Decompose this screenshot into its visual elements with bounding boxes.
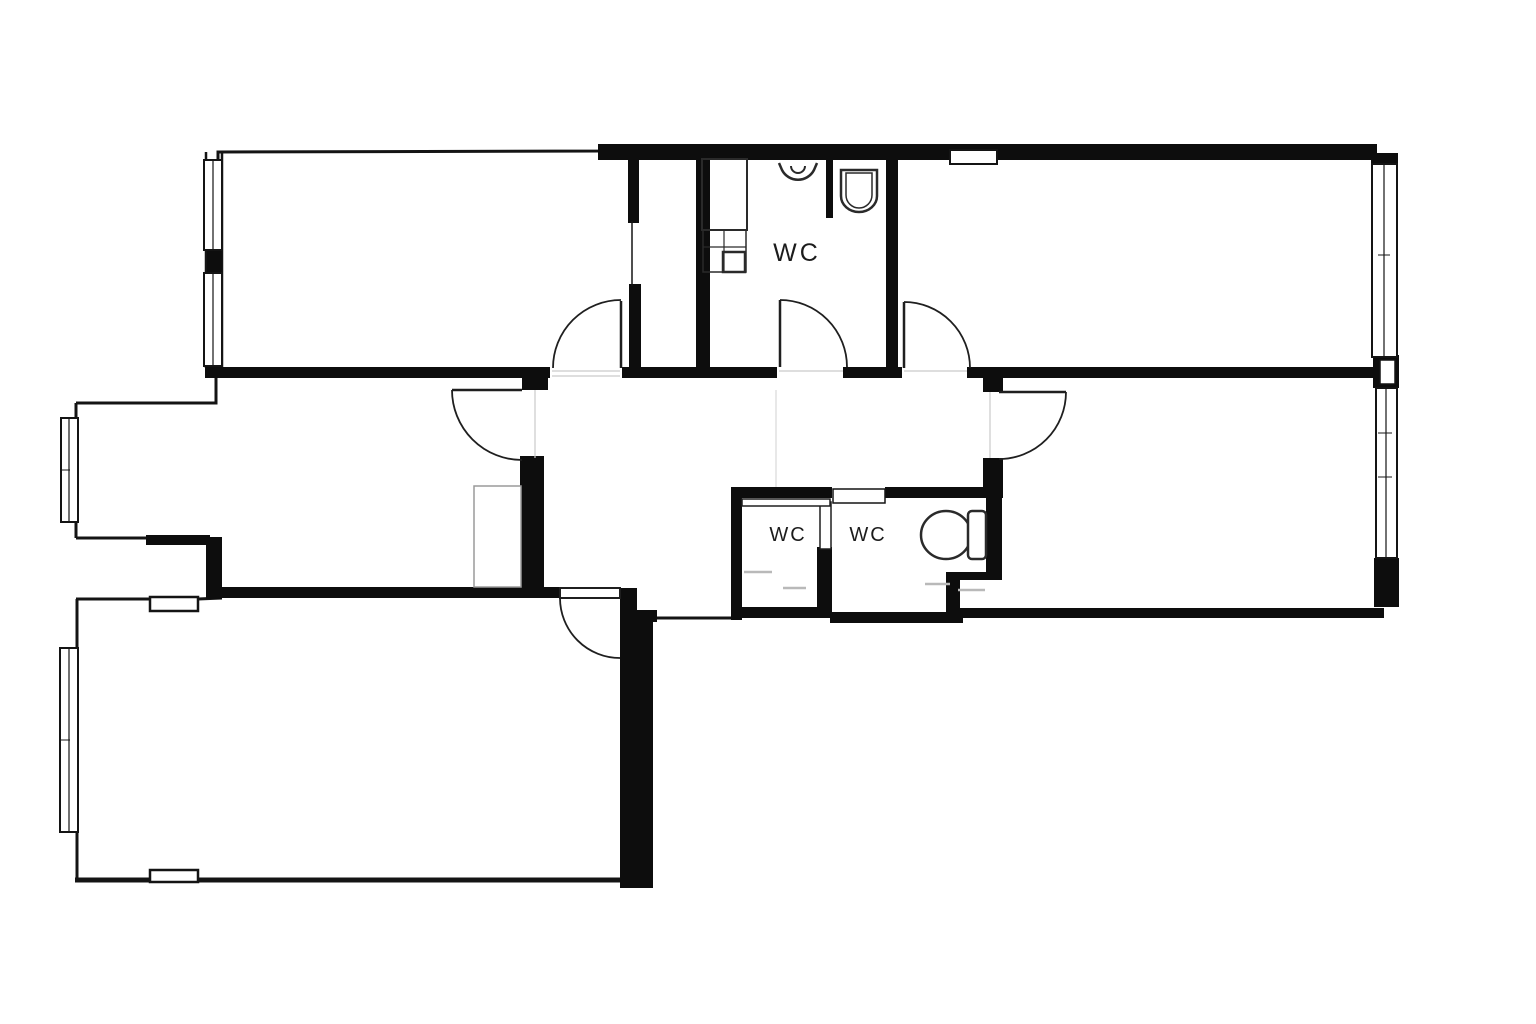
wall-wc-divider bbox=[817, 547, 832, 610]
wall-midleft-bottom bbox=[146, 535, 210, 545]
wall-wc-top-right bbox=[886, 144, 898, 368]
toilet-top-icon bbox=[841, 170, 877, 212]
exterior-wall-top-left bbox=[218, 147, 632, 161]
door-wc-left-slider bbox=[742, 499, 830, 506]
window-topleft-lower bbox=[204, 273, 222, 366]
room-label-wc-top: WC bbox=[773, 239, 821, 267]
door-wc-top bbox=[780, 300, 847, 367]
window-topleft-upper bbox=[204, 160, 222, 250]
room-label-wc-right: WC bbox=[849, 524, 886, 546]
window-sill-box bbox=[1380, 360, 1395, 384]
wall-closet-upper bbox=[628, 150, 639, 223]
wall-toilet-niche bbox=[826, 158, 833, 218]
toilet-right-icon bbox=[921, 511, 986, 559]
wall-cap-topright bbox=[1371, 153, 1398, 164]
wall-bottomroom-right bbox=[620, 588, 657, 888]
door-midleft-room bbox=[452, 390, 522, 460]
wall-notches bbox=[150, 150, 997, 882]
notch-topright-wall bbox=[950, 150, 997, 164]
window-midright bbox=[1376, 388, 1397, 558]
door-bottomleft-room bbox=[560, 588, 620, 658]
wall-wcright-east bbox=[986, 487, 1002, 580]
thresholds bbox=[535, 371, 990, 487]
wall-spine-d bbox=[967, 367, 1382, 378]
wall-midright-bottom bbox=[956, 608, 1384, 618]
windows bbox=[60, 160, 1397, 832]
notch-bottomroom-top bbox=[150, 597, 198, 611]
door-midright-room bbox=[999, 392, 1066, 459]
wall-wcleft-west bbox=[731, 487, 742, 620]
exterior-wall-step bbox=[76, 378, 216, 403]
sink-icon bbox=[779, 163, 817, 180]
window-midleft bbox=[61, 418, 78, 522]
wall-wcleft-bottom bbox=[738, 607, 832, 618]
notch-wc-entry bbox=[833, 489, 885, 503]
window-bottomleft bbox=[60, 648, 78, 832]
wardrobe-rect bbox=[474, 486, 521, 587]
wall-wcright-bottom bbox=[830, 612, 963, 623]
door-wc-right-leaf bbox=[820, 502, 831, 549]
wall-wcleft-top bbox=[731, 487, 832, 498]
wall-midleft-corner bbox=[206, 537, 222, 599]
floor-plan-svg: WC WC WC bbox=[0, 0, 1536, 1024]
wall-hall-west-block bbox=[522, 370, 548, 390]
room-label-wc-left: WC bbox=[769, 524, 806, 546]
wall-spine-cap bbox=[205, 366, 216, 378]
wall-bottomroom-top bbox=[220, 587, 562, 598]
door-topright-room bbox=[904, 302, 970, 368]
doors bbox=[452, 300, 1066, 658]
wall-closet-lower bbox=[629, 284, 641, 377]
wall-hall-east-upper bbox=[983, 368, 1003, 392]
floor-plan-canvas: WC WC WC bbox=[0, 0, 1536, 1024]
wall-spine-c bbox=[843, 367, 902, 378]
door-topleft-room bbox=[553, 300, 621, 368]
window-topright bbox=[1372, 164, 1397, 357]
wall-window-connector bbox=[207, 248, 222, 274]
wall-hall-west bbox=[520, 456, 544, 589]
wall-hall-east-lower bbox=[983, 458, 1003, 498]
notch-bottomroom-bottom bbox=[150, 870, 198, 882]
wall-cap-bottomright bbox=[1374, 558, 1399, 607]
wall-spine-a bbox=[211, 367, 550, 378]
